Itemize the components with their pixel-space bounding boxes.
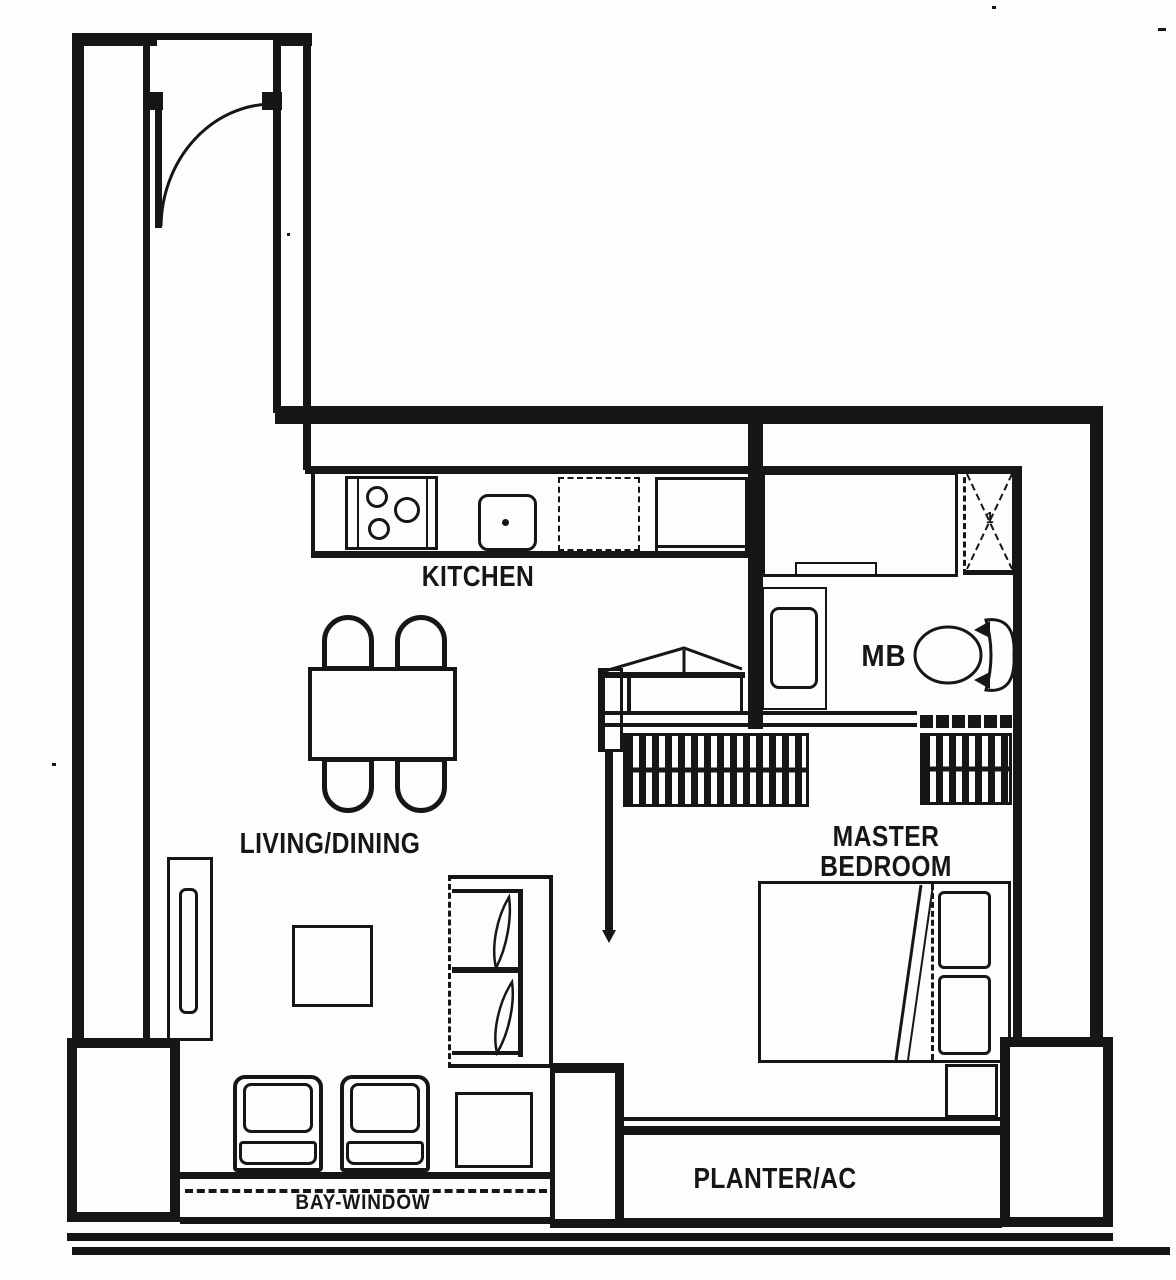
toilet-joint bbox=[974, 672, 990, 689]
master-bedroom-label: MASTER BEDROOM bbox=[793, 822, 980, 883]
bed-blanket-fold bbox=[908, 885, 933, 1060]
curved-details bbox=[0, 0, 1176, 1280]
sofa-cushion-crease bbox=[495, 982, 512, 1053]
bay-window-label: BAY-WINDOW bbox=[273, 1192, 453, 1214]
floor-plan: KITCHEN LIVING/DINING MASTER BEDROOM MB … bbox=[0, 0, 1176, 1280]
master-bath-label: MB bbox=[839, 640, 929, 673]
closet-rod-symbol bbox=[598, 648, 742, 673]
bed-blanket-fold bbox=[896, 885, 921, 1060]
toilet-joint bbox=[974, 621, 990, 638]
master-bedroom-label-line2: BEDROOM bbox=[793, 852, 980, 882]
kitchen-label: KITCHEN bbox=[393, 562, 563, 592]
entry-door-swing-arc bbox=[161, 104, 271, 226]
shower-drain-mark: 1 bbox=[977, 511, 1003, 528]
master-bedroom-label-line1: MASTER bbox=[793, 822, 980, 852]
living-dining-label: LIVING/DINING bbox=[224, 829, 437, 859]
toilet-tank bbox=[986, 620, 1014, 691]
planter-ac-label: PLANTER/AC bbox=[669, 1164, 882, 1194]
sofa-cushion-crease bbox=[494, 897, 510, 968]
